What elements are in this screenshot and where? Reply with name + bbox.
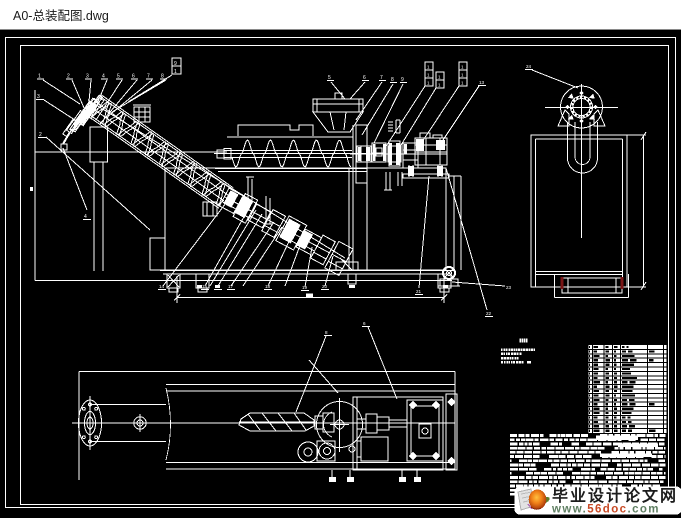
svg-text:8: 8: [325, 330, 328, 335]
svg-text:毕业设计论文网: 毕业设计论文网: [552, 486, 678, 505]
svg-text:15: 15: [202, 284, 208, 289]
svg-text:9: 9: [174, 61, 177, 67]
svg-text:13: 13: [479, 80, 485, 85]
svg-text:24: 24: [526, 64, 532, 69]
svg-text:16: 16: [215, 284, 221, 289]
svg-text:23: 23: [506, 285, 512, 290]
svg-text:www.56doc.com: www.56doc.com: [551, 504, 660, 516]
svg-text:22: 22: [486, 311, 492, 316]
svg-text:A0-总装配图.dwg: A0-总装配图.dwg: [13, 9, 109, 23]
svg-text:17: 17: [228, 284, 234, 289]
svg-text:18: 18: [265, 284, 271, 289]
svg-text:1: 1: [174, 69, 177, 75]
svg-text:20: 20: [322, 284, 328, 289]
svg-text:21: 21: [416, 289, 422, 294]
svg-text:6: 6: [363, 321, 366, 326]
